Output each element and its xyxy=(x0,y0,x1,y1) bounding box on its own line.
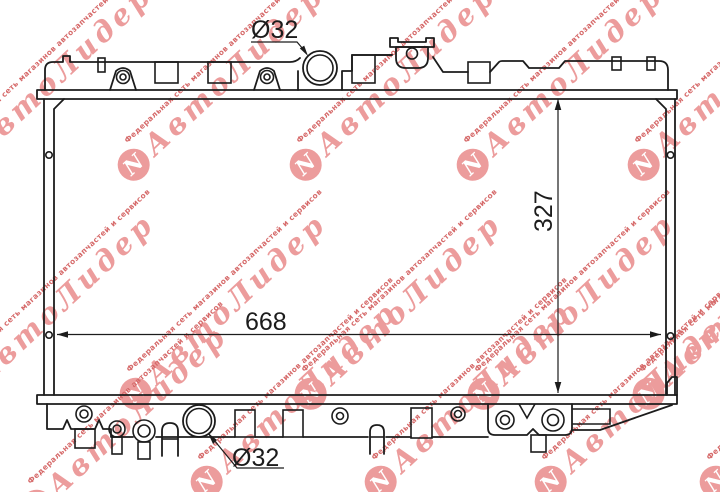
top-ear-right xyxy=(254,68,280,90)
dimension-bottom-diameter: Ø32 xyxy=(208,433,284,472)
outlet-tube xyxy=(162,423,178,456)
drain-pipe xyxy=(133,420,155,459)
dimension-width-label: 668 xyxy=(245,308,287,336)
filler-neck xyxy=(298,51,392,90)
top-header-plate xyxy=(37,90,677,99)
dimension-height: 327 xyxy=(530,99,561,393)
drain-plug xyxy=(109,421,125,454)
dimension-width: 668 xyxy=(57,308,661,338)
left-side-channel xyxy=(44,99,64,395)
top-clip-tab xyxy=(647,57,655,70)
top-tank xyxy=(37,38,677,99)
dimension-top-diameter: Ø32 xyxy=(251,16,308,56)
top-clip-tab xyxy=(98,58,105,72)
small-pipe xyxy=(370,425,384,454)
top-clip-tab xyxy=(612,57,621,70)
radiator-drawing-page: Федеральная сеть магазинов автозапчастей… xyxy=(0,0,720,492)
bottom-header-plate xyxy=(37,395,677,404)
top-ear-left xyxy=(110,68,136,90)
bottom-bracket xyxy=(488,404,572,452)
radiator-drawing: 668 327 Ø32 Ø32 xyxy=(0,0,720,492)
cap-bracket xyxy=(390,38,434,68)
bottom-outlet xyxy=(183,405,215,437)
top-diameter-label: Ø32 xyxy=(251,16,298,44)
right-side-channel xyxy=(656,99,675,395)
bottom-diameter-label: Ø32 xyxy=(232,444,279,472)
dimension-height-label: 327 xyxy=(530,190,558,232)
bottom-tank xyxy=(37,377,677,459)
